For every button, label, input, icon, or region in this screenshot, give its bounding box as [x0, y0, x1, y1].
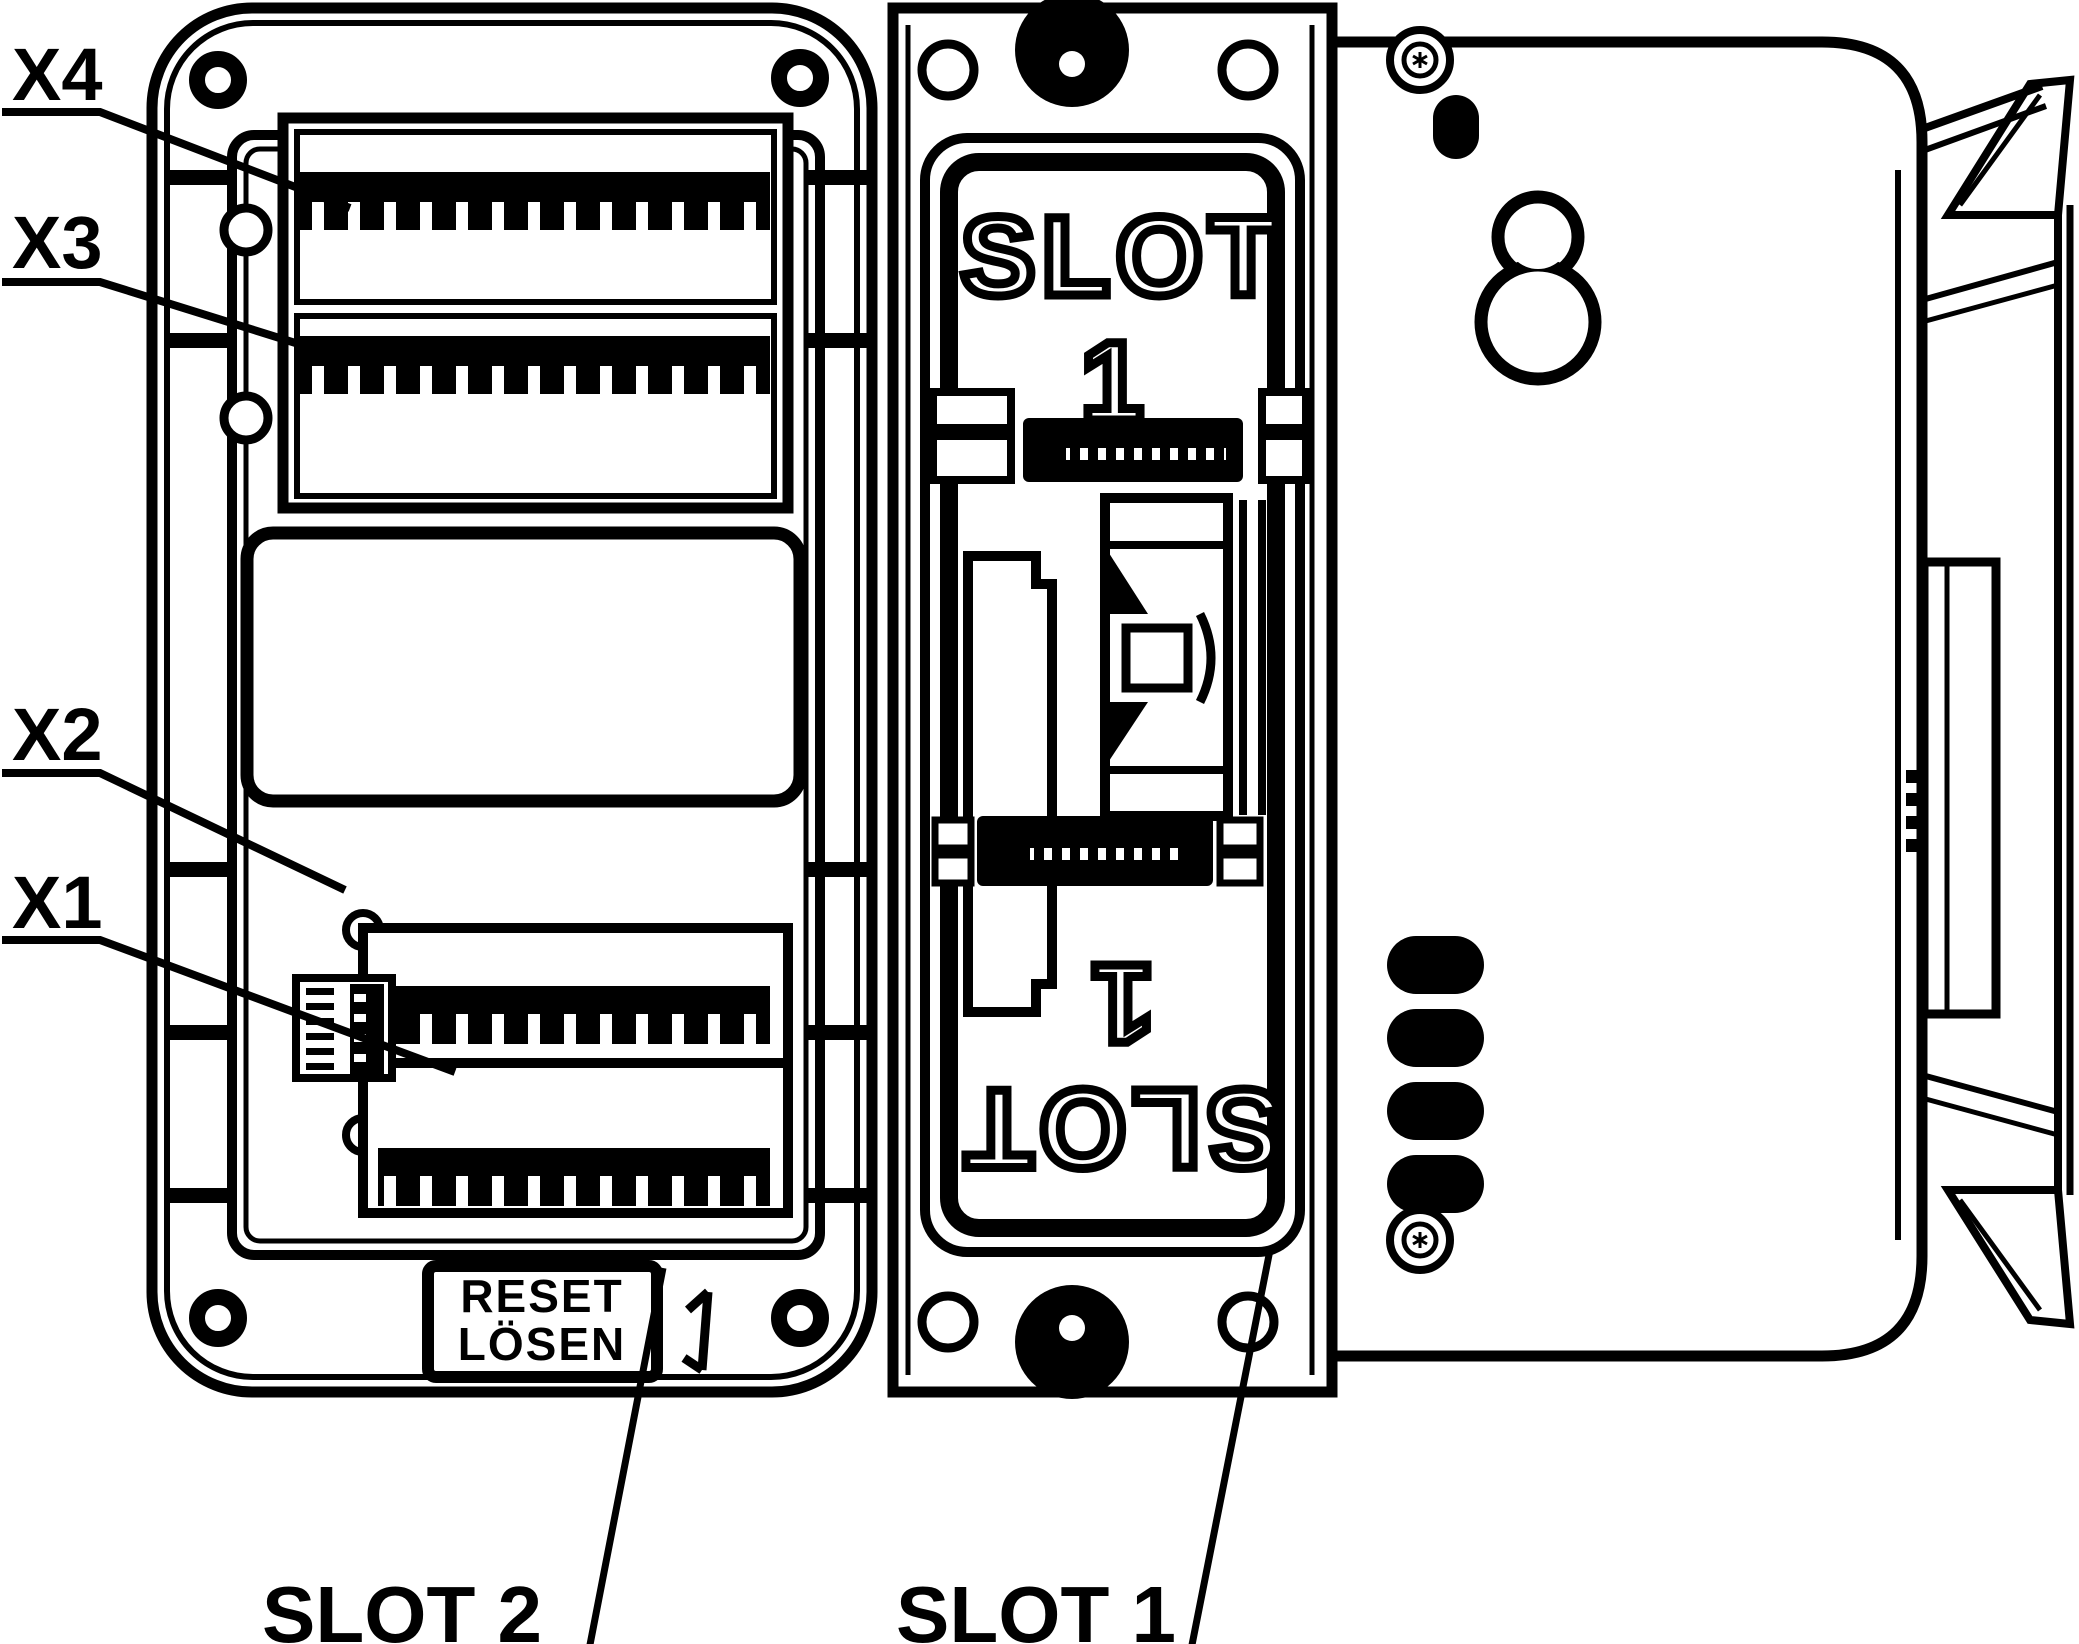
label-slot1: SLOT 1 [896, 1570, 1176, 1644]
screw-hole-ring [922, 1296, 974, 1348]
terminal-block-x4-x3 [283, 118, 788, 508]
screw-hole-ring [1222, 1296, 1274, 1348]
reset-label-line1: RESET [460, 1270, 623, 1322]
reset-button-label: RESET LÖSEN [428, 1266, 657, 1377]
slot1-bottom-connector [935, 816, 1260, 886]
callout-x2: X2 [12, 693, 103, 776]
device-diagram: RESET LÖSEN SLOT 1 [0, 0, 2079, 1644]
rail-clip-slider [1924, 562, 1996, 1014]
callout-x1: X1 [12, 861, 103, 944]
din-rail-clip [1906, 80, 2070, 1324]
x4-terminal-teeth-row [300, 172, 770, 202]
slot1-marking-word: SLOT [961, 194, 1284, 319]
right-mount-panel [1332, 30, 1922, 1356]
torx-screw [1390, 1210, 1450, 1270]
pill-cutout [1433, 95, 1479, 159]
screw-hole-ring [922, 44, 974, 96]
screw-head-solid [1015, 1285, 1129, 1399]
keyhole-wall-mount [1481, 197, 1595, 379]
terminal-block-x1 [363, 1063, 788, 1213]
card-guide-window [1126, 628, 1188, 688]
middle-module-slot1-bay: SLOT 1 [893, 0, 1332, 1399]
x3-terminal-teeth-row [300, 336, 770, 366]
callout-x3: X3 [12, 201, 103, 284]
reset-label-line2: LÖSEN [458, 1318, 626, 1370]
terminal-block-x2 [363, 928, 788, 1063]
clip-bump [224, 208, 268, 252]
cover-plate [247, 533, 800, 801]
left-module: RESET LÖSEN [152, 8, 872, 1392]
clip-bump [224, 396, 268, 440]
slot1-marking-word-rotated: SLOT [959, 1066, 1282, 1191]
label-slot2: SLOT 2 [262, 1570, 542, 1644]
callout-x4: X4 [12, 33, 103, 116]
screw-hole-ring [1222, 44, 1274, 96]
torx-screw [1390, 30, 1450, 90]
slot1-marking-number-rotated: 1 [1092, 941, 1154, 1066]
technical-drawing-page: RESET LÖSEN SLOT 1 [0, 0, 2079, 1644]
